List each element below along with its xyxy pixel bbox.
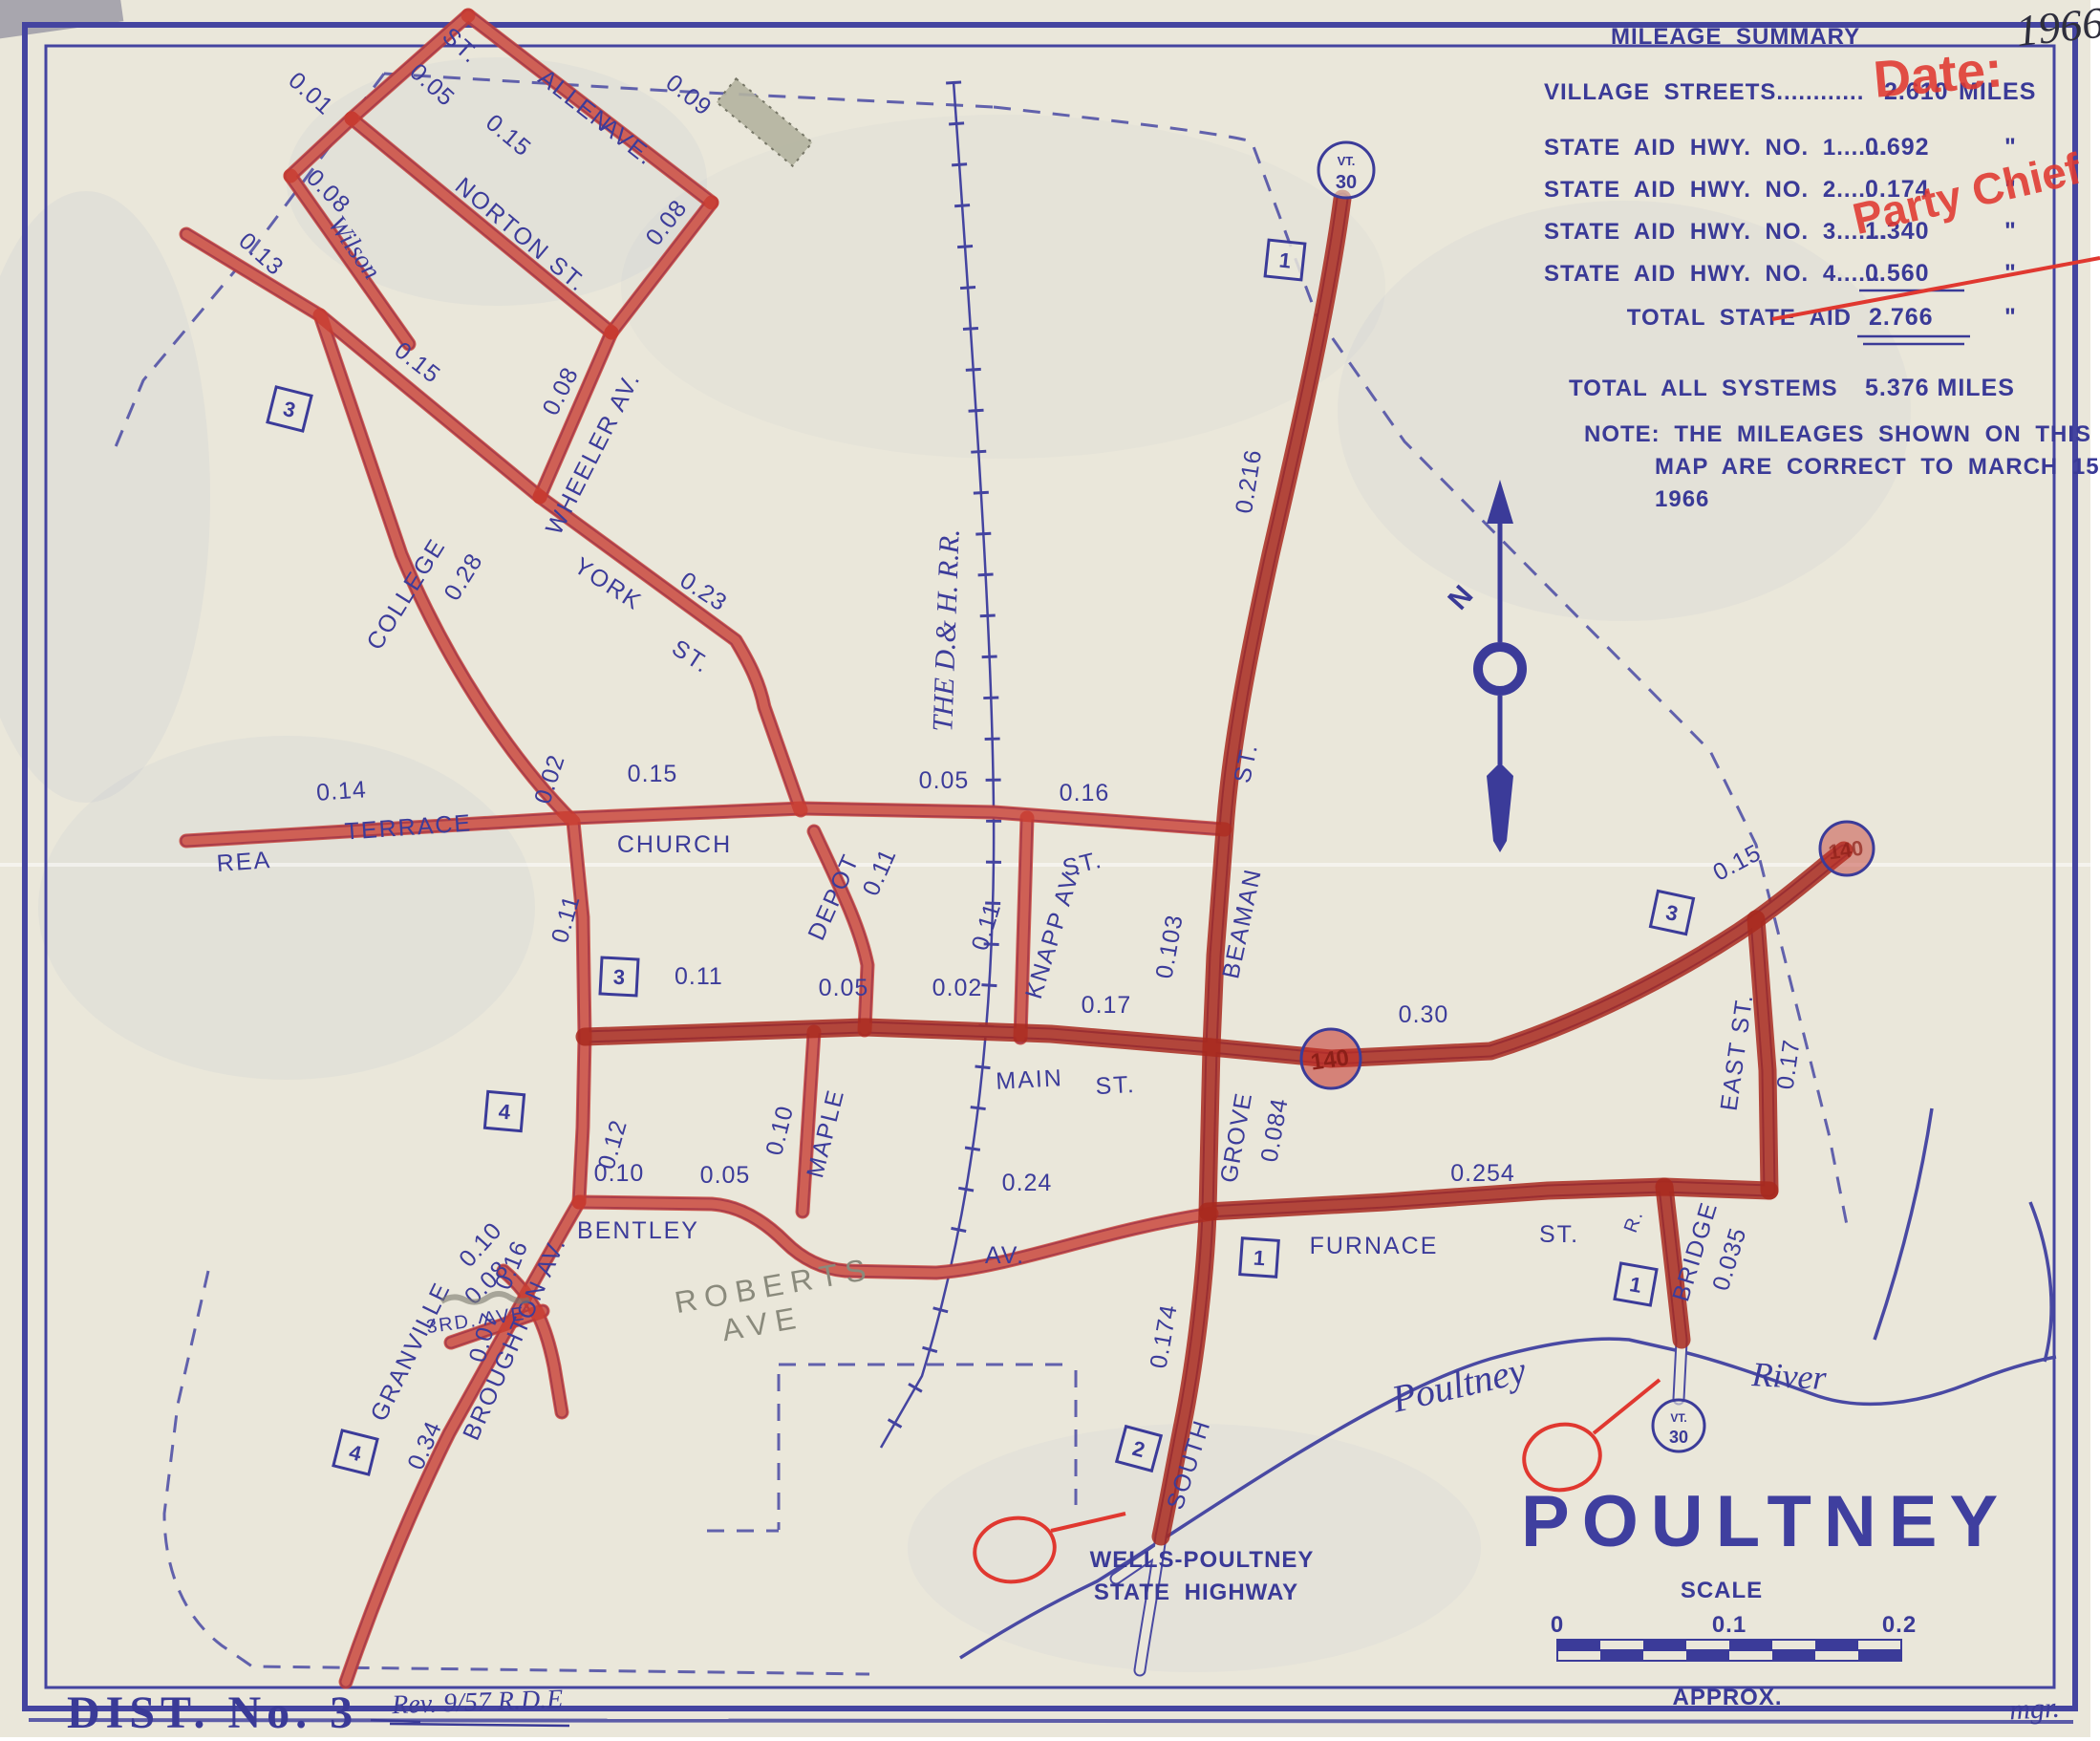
mileage-bentley-w: 0.10 <box>594 1160 645 1187</box>
street-label-church: CHURCH <box>617 831 732 858</box>
svg-text:VT.: VT. <box>1338 154 1356 168</box>
scale-bar <box>1557 1640 1901 1661</box>
street-label-main-st: ST. <box>1095 1071 1137 1100</box>
summary-year-handwritten: 1966 <box>2014 0 2100 55</box>
route-marker-3-college: 3 <box>268 387 311 431</box>
row-total-state-aid-unit: " <box>2004 304 2017 331</box>
stamp-date: Date: <box>1872 40 2005 109</box>
paper-stain <box>621 115 1385 459</box>
route-marker-4-granville: 4 <box>333 1430 377 1474</box>
route-marker-3-main: 3 <box>600 957 638 996</box>
street-label-furnace-st: ST. <box>1539 1221 1579 1248</box>
revision-note: Rev. 9/57 R.D.E <box>391 1685 564 1720</box>
vt-140-circle-east: 140 <box>1820 822 1874 875</box>
svg-text:140: 140 <box>1309 1044 1350 1075</box>
route-marker-1-beaman: 1 <box>1265 240 1305 280</box>
svg-text:30: 30 <box>1336 172 1357 193</box>
svg-text:VT.: VT. <box>1670 1411 1686 1425</box>
row-total-all-label: TOTAL ALL SYSTEMS <box>1569 376 1838 401</box>
note-line-3: 1966 <box>1655 486 1709 512</box>
row-total-all-value: 5.376 MILES <box>1865 375 2015 401</box>
row-sa3-unit: " <box>2004 218 2017 245</box>
svg-text:3: 3 <box>612 965 626 990</box>
vt-140-circle-main: 140 <box>1301 1029 1361 1088</box>
map-canvas: Poultney River THE D.& H. R.R. <box>0 0 2100 1741</box>
row-sa2-label: STATE AID HWY. NO. 2..... <box>1544 177 1874 203</box>
mileage-main-knapp: 0.02 <box>932 975 983 1001</box>
svg-text:30: 30 <box>1669 1428 1688 1447</box>
scale-0: 0 <box>1551 1612 1564 1638</box>
scale-02: 0.2 <box>1882 1612 1917 1638</box>
wells-highway-line1: WELLS-POULTNEY <box>1090 1547 1315 1573</box>
mileage-bentley-e: 0.05 <box>700 1162 751 1189</box>
row-sa4-label: STATE AID HWY. NO. 4...... <box>1544 261 1880 287</box>
vt-30-shield-bottom: VT. 30 <box>1653 1400 1704 1451</box>
street-label-bentley: BENTLEY <box>577 1217 699 1244</box>
row-sa1-value: 0.692 <box>1865 134 1930 161</box>
route-marker-2-south: 2 <box>1117 1427 1162 1472</box>
street-label-main: MAIN <box>996 1064 1064 1095</box>
mileage-church-e: 0.16 <box>1060 780 1110 806</box>
row-total-state-aid-label: TOTAL STATE AID <box>1627 305 1852 331</box>
scale-01: 0.1 <box>1712 1612 1746 1638</box>
mileage-bentley-far-e: 0.24 <box>1002 1170 1053 1196</box>
mileage-main-east: 0.30 <box>1399 1001 1449 1028</box>
street-label-furnace: FURNACE <box>1310 1233 1439 1259</box>
route-marker-1-furnace: 1 <box>1240 1238 1279 1278</box>
approx-label: APPROX. <box>1672 1685 1782 1710</box>
river-label-river: River <box>1750 1355 1829 1397</box>
row-village-label: VILLAGE STREETS............ <box>1544 79 1864 105</box>
row-total-state-aid-value: 2.766 <box>1869 304 1934 331</box>
mileage-furnace: 0.254 <box>1450 1160 1515 1187</box>
mileage-church-m: 0.05 <box>919 767 970 794</box>
note-line-1: NOTE: THE MILEAGES SHOWN ON THIS <box>1584 421 2091 447</box>
scanned-map-poultney: Poultney River THE D.& H. R.R. <box>0 0 2100 1741</box>
route-marker-3-east: 3 <box>1650 891 1693 934</box>
row-sa1-label: STATE AID HWY. NO. 1....... <box>1544 135 1888 161</box>
wells-highway-line2: STATE HIGHWAY <box>1094 1580 1298 1605</box>
district-label: DIST. No. 3 <box>67 1687 358 1738</box>
mileage-main-beaman: 0.17 <box>1082 992 1132 1019</box>
fold-crease <box>0 863 2090 867</box>
note-line-2: MAP ARE CORRECT TO MARCH 15, <box>1655 454 2100 480</box>
svg-text:1: 1 <box>1253 1246 1266 1271</box>
route-marker-1-bridge: 1 <box>1615 1263 1657 1305</box>
mileage-main-west: 0.11 <box>675 963 723 990</box>
mgr-signature: mgr. <box>2008 1692 2060 1727</box>
mileage-main-depot: 0.05 <box>819 975 869 1001</box>
mileage-church-w: 0.15 <box>628 761 678 787</box>
route-marker-4-college: 4 <box>484 1091 524 1130</box>
town-title: POULTNEY <box>1521 1481 2010 1562</box>
scale-label: SCALE <box>1681 1578 1763 1603</box>
summary-title: MILEAGE SUMMARY <box>1611 24 1860 50</box>
street-label-bentley-av: AV. <box>985 1242 1025 1269</box>
svg-text:1: 1 <box>1278 247 1293 272</box>
street-label-rea: REA <box>216 847 272 877</box>
row-sa3-label: STATE AID HWY. NO. 3....... <box>1544 219 1888 245</box>
vt-30-shield-top: VT. 30 <box>1318 142 1374 198</box>
row-sa4-value: 0.560 <box>1865 260 1930 287</box>
svg-text:140: 140 <box>1827 836 1865 865</box>
mileage-rea: 0.14 <box>315 776 367 806</box>
